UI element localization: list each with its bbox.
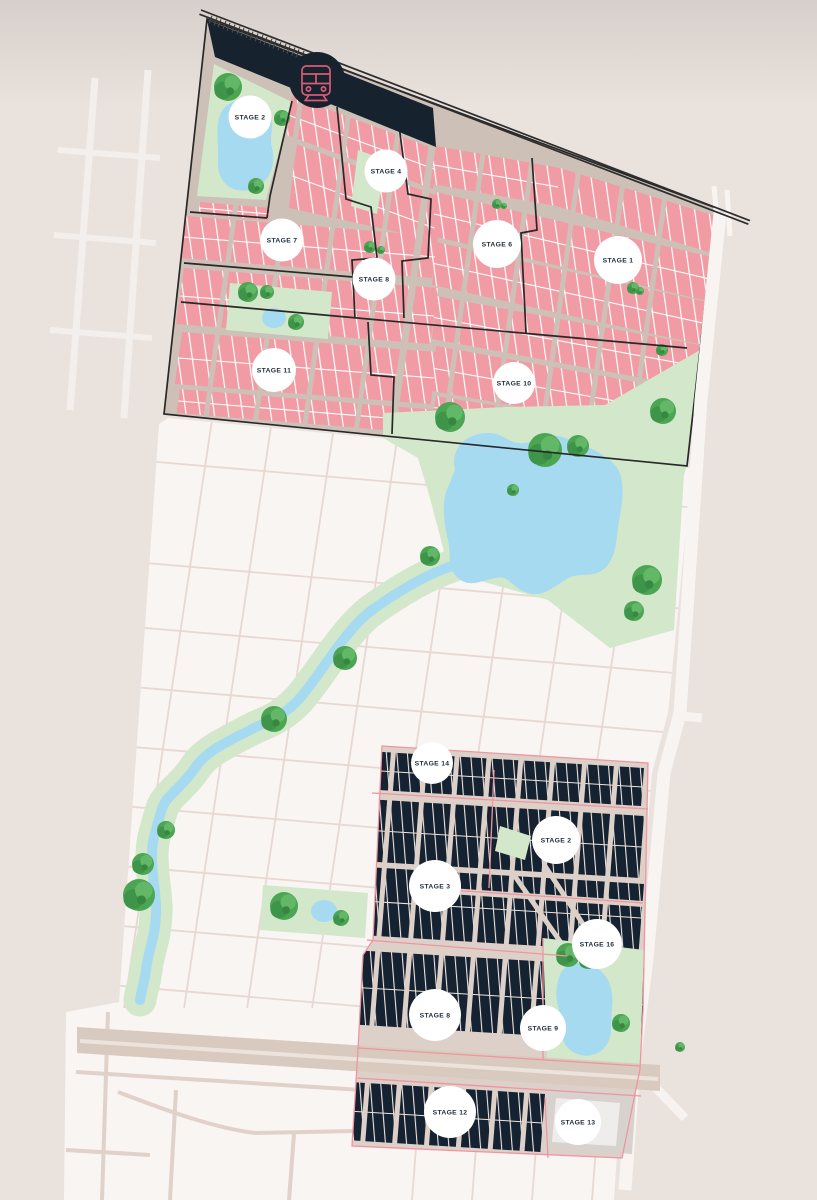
svg-text:STAGE 13: STAGE 13: [561, 1119, 596, 1126]
svg-text:STAGE 10: STAGE 10: [497, 380, 532, 387]
svg-text:STAGE 4: STAGE 4: [371, 168, 402, 175]
svg-text:STAGE 14: STAGE 14: [415, 760, 450, 767]
svg-text:STAGE 8: STAGE 8: [420, 1012, 451, 1019]
svg-text:STAGE 2: STAGE 2: [235, 114, 266, 121]
svg-text:STAGE 8: STAGE 8: [359, 276, 390, 283]
svg-text:STAGE 16: STAGE 16: [580, 941, 615, 948]
svg-text:STAGE 6: STAGE 6: [482, 241, 513, 248]
svg-text:STAGE 3: STAGE 3: [420, 883, 451, 890]
svg-text:STAGE 7: STAGE 7: [267, 237, 298, 244]
svg-text:STAGE 12: STAGE 12: [433, 1109, 468, 1116]
svg-text:STAGE 2: STAGE 2: [541, 837, 572, 844]
svg-text:STAGE 1: STAGE 1: [603, 257, 634, 264]
svg-text:STAGE 11: STAGE 11: [257, 367, 291, 374]
svg-text:STAGE 9: STAGE 9: [528, 1025, 559, 1032]
